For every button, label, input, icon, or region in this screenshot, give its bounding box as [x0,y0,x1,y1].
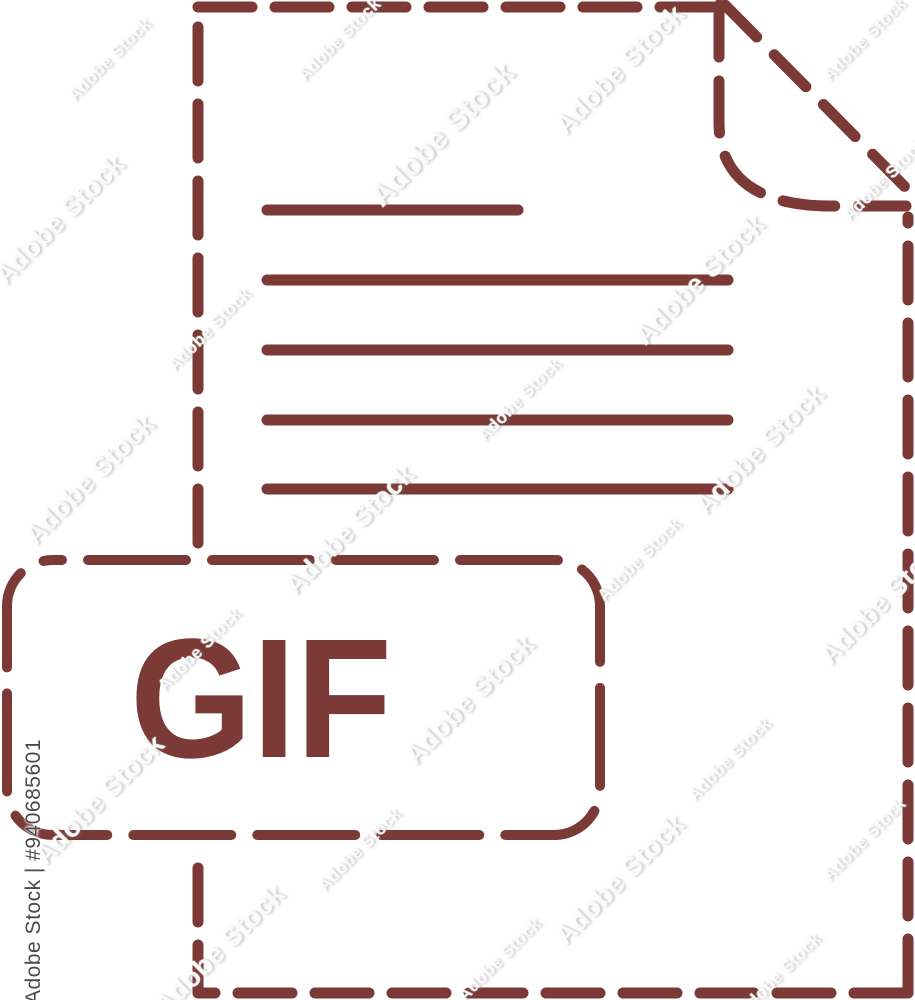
document-outline [198,7,908,993]
fold-crease [725,5,906,188]
gif-file-icon: GIF [0,0,915,1000]
stock-image-canvas: GIF Adobe Stock Adobe Stock Adobe Stock … [0,0,915,1000]
file-type-label: GIF [130,604,392,794]
fold-flap-curve [719,5,906,206]
file-type-badge: GIF [7,560,600,835]
folded-corner-icon [719,5,906,206]
document-text-lines [267,210,728,489]
